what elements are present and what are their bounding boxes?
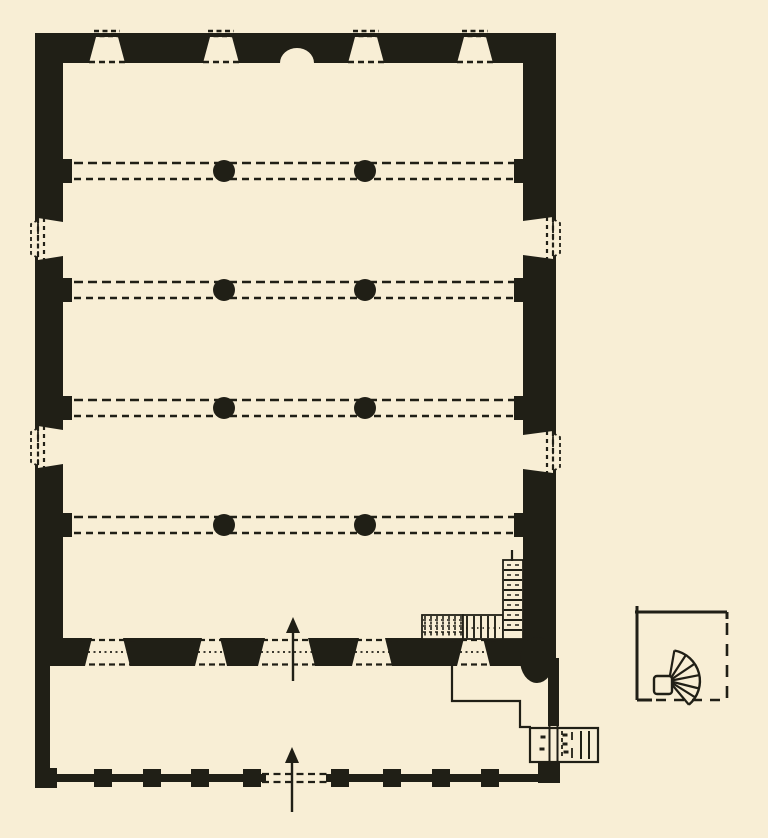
column bbox=[354, 160, 376, 182]
column bbox=[213, 514, 235, 536]
vestibule-mark bbox=[540, 748, 545, 751]
vestibule-mark bbox=[563, 734, 568, 737]
hall-east-wall bbox=[523, 33, 556, 666]
courtyard-east-wall bbox=[548, 658, 559, 726]
vestibule-mark bbox=[563, 743, 568, 746]
stair-flight-horizontal bbox=[463, 615, 503, 639]
east-niche bbox=[523, 217, 553, 259]
spiral-stair-newel bbox=[654, 676, 672, 694]
west-pilaster bbox=[63, 278, 72, 302]
west-niche bbox=[38, 218, 63, 260]
floor-plan-figure bbox=[0, 0, 768, 838]
column bbox=[354, 279, 376, 301]
courtyard-pier bbox=[383, 769, 401, 787]
west-pilaster bbox=[63, 159, 72, 183]
courtyard-pier bbox=[481, 769, 499, 787]
paper-background bbox=[0, 0, 768, 838]
courtyard-pier bbox=[143, 769, 161, 787]
column bbox=[213, 397, 235, 419]
east-pilaster bbox=[514, 278, 523, 302]
column bbox=[213, 160, 235, 182]
east-pilaster bbox=[514, 513, 523, 537]
courtyard-pier bbox=[191, 769, 209, 787]
west-pilaster bbox=[63, 396, 72, 420]
courtyard-pier bbox=[331, 769, 349, 787]
vestibule-mark bbox=[564, 751, 569, 754]
column bbox=[213, 279, 235, 301]
west-niche bbox=[38, 426, 63, 468]
courtyard-pier bbox=[94, 769, 112, 787]
hall-west-wall bbox=[35, 33, 63, 666]
east-pilaster bbox=[514, 396, 523, 420]
floor-plan-drawing bbox=[0, 0, 768, 838]
west-pilaster bbox=[63, 513, 72, 537]
courtyard-pier bbox=[243, 769, 261, 787]
courtyard-pier bbox=[432, 769, 450, 787]
column bbox=[354, 397, 376, 419]
vestibule-mark bbox=[541, 736, 546, 739]
east-pilaster bbox=[514, 159, 523, 183]
south-opening bbox=[85, 638, 130, 666]
column bbox=[354, 514, 376, 536]
east-niche bbox=[523, 431, 553, 473]
